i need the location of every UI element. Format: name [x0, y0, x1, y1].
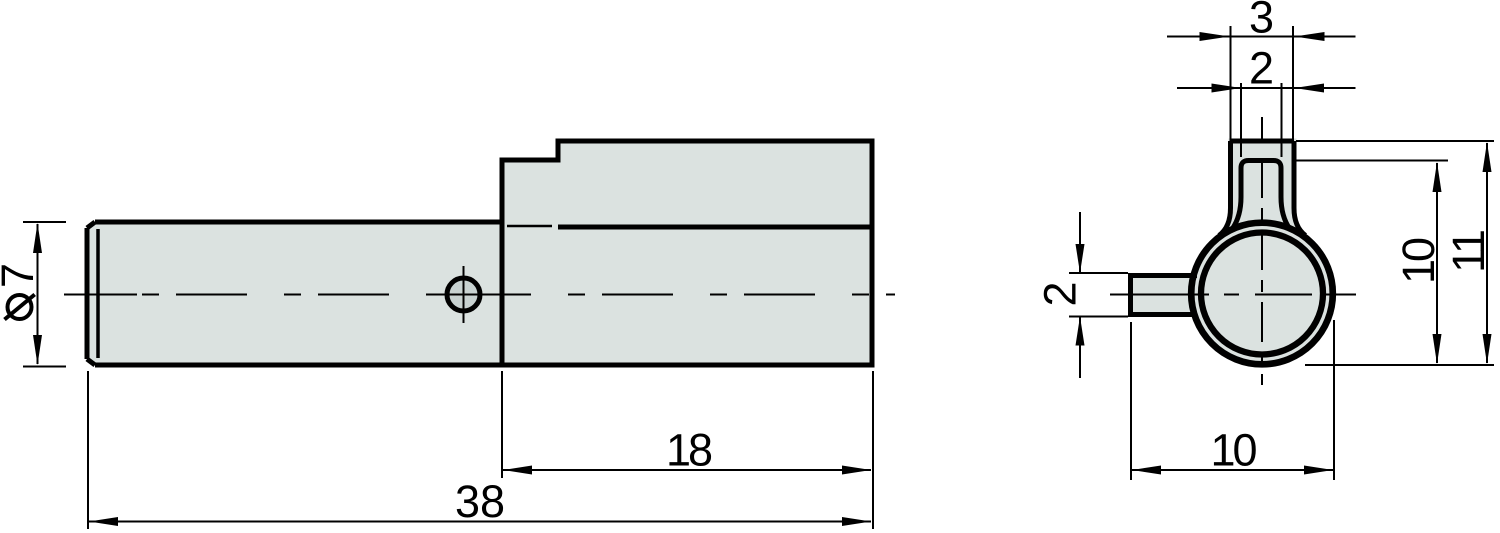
svg-text:10: 10	[1393, 238, 1444, 284]
svg-text:10: 10	[1210, 425, 1256, 476]
svg-text:3: 3	[1249, 0, 1274, 43]
svg-text:7: 7	[0, 263, 43, 288]
svg-text:2: 2	[1249, 43, 1274, 94]
svg-text:11: 11	[1443, 231, 1494, 273]
svg-text:38: 38	[455, 476, 505, 527]
svg-text:18: 18	[666, 425, 712, 476]
svg-text:2: 2	[1035, 281, 1086, 306]
